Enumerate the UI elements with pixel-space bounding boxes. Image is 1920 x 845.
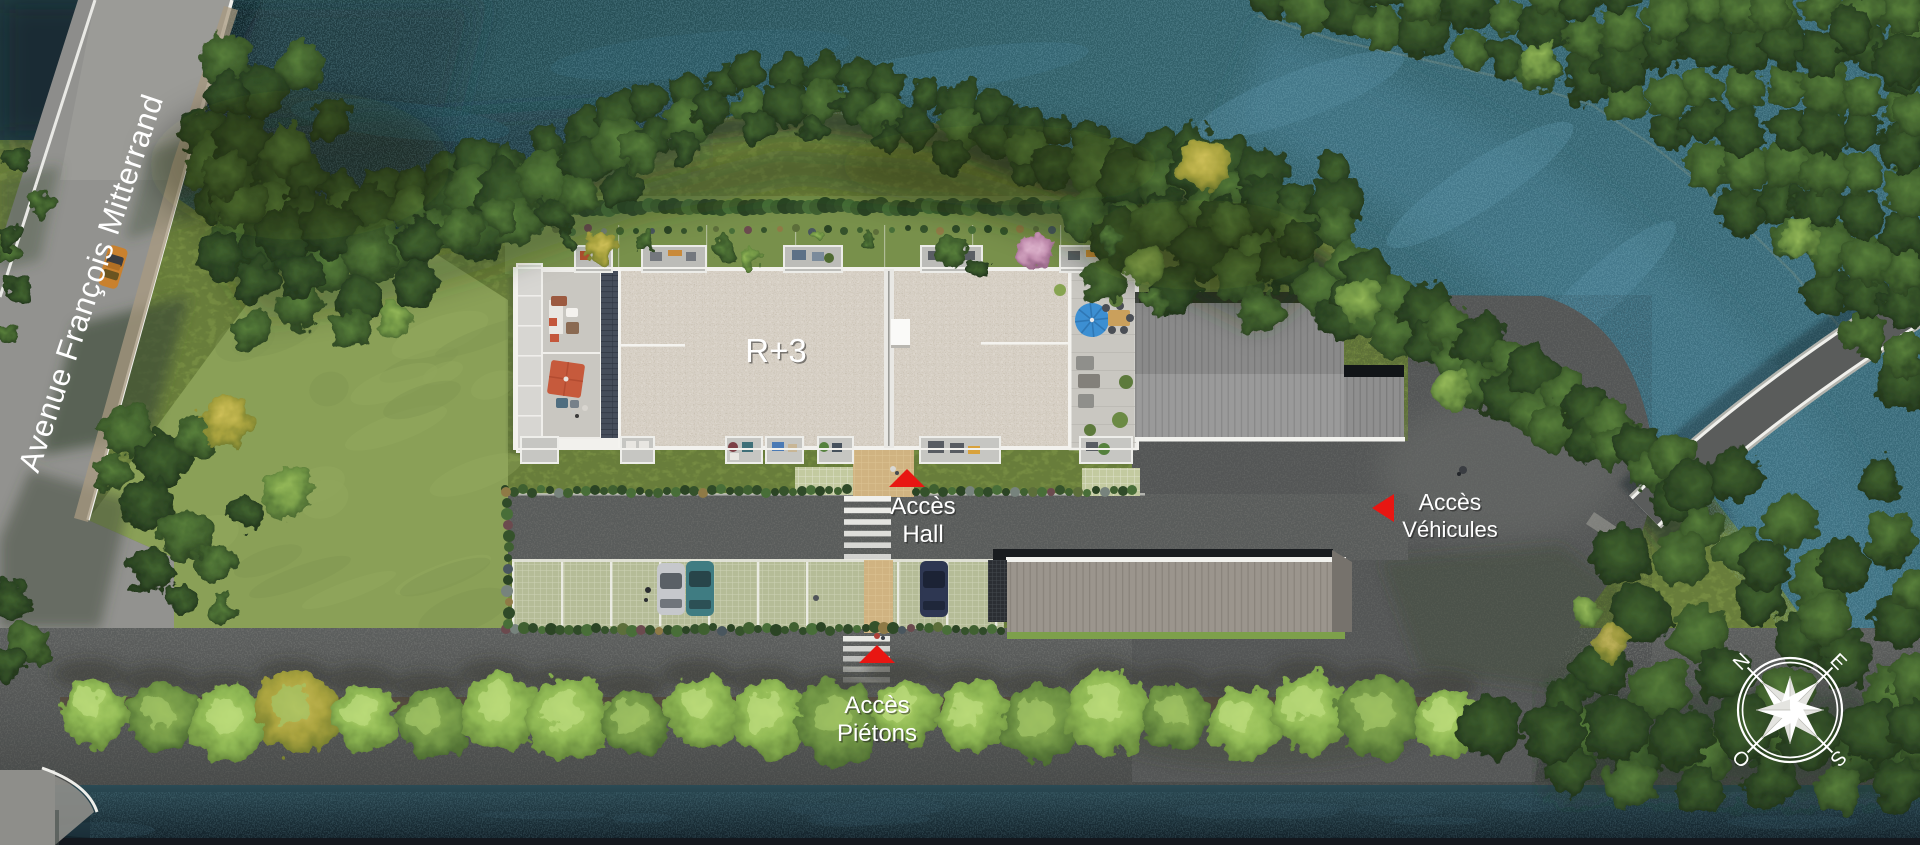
svg-text:Accès: Accès bbox=[890, 493, 955, 520]
svg-text:Accès: Accès bbox=[844, 692, 909, 719]
svg-text:Piétons: Piétons bbox=[837, 720, 917, 747]
svg-text:Accès: Accès bbox=[1419, 489, 1482, 515]
svg-text:Hall: Hall bbox=[902, 521, 943, 548]
svg-text:R+3: R+3 bbox=[745, 332, 806, 369]
svg-text:Véhicules: Véhicules bbox=[1402, 517, 1497, 542]
